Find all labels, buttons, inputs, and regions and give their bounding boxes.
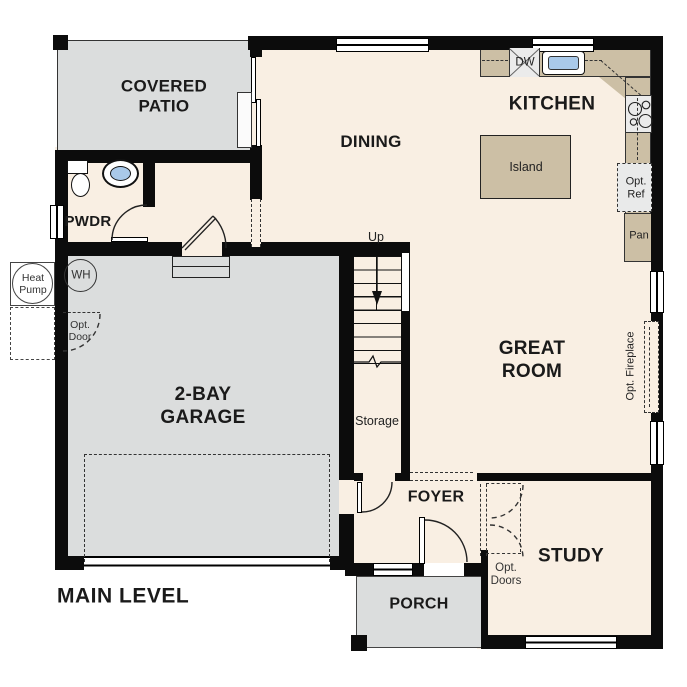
stairs-break-line	[352, 355, 402, 369]
room-label-pwdr: PWDR	[64, 213, 111, 231]
garage-foyer-door-arc	[362, 482, 392, 512]
hall-dining-cased-opening	[251, 199, 261, 247]
garage-step-lower	[172, 266, 230, 278]
pantry-label: Pan	[629, 230, 649, 243]
up-label: Up	[368, 230, 384, 244]
optional-fireplace-inner-line	[649, 327, 652, 407]
foyer-greatroom-cased-opening	[410, 472, 473, 481]
garage-entry-door	[180, 204, 228, 250]
optional-garage-door-label: Opt. Door	[69, 319, 92, 343]
garage-door-outline	[84, 454, 330, 562]
wall-hall-bottom	[55, 242, 410, 256]
powder-sink-basin	[110, 166, 131, 181]
cabinet-dash-vertical	[637, 98, 640, 160]
water-heater-label: WH	[71, 269, 90, 282]
front-door-arc	[425, 520, 467, 562]
window-kitchen	[532, 38, 594, 52]
dishwasher-label: DW	[515, 56, 534, 69]
patio-post	[53, 35, 68, 50]
wall-powder-right	[143, 150, 155, 207]
optional-refrigerator-label: Opt. Ref	[626, 175, 647, 200]
window-powder	[50, 205, 64, 239]
porch-post	[351, 635, 367, 651]
optional-fireplace-label: Opt. Fireplace	[625, 331, 638, 400]
floor-plan: DW Opt. Ref Pan Opt. Fireplace Up Storag…	[0, 0, 687, 687]
wall-garage-right	[339, 242, 354, 569]
wall-dining-west	[250, 145, 262, 200]
front-door-opening	[424, 563, 464, 576]
wall-greatroom-study	[477, 473, 663, 481]
heat-pump-label: Heat Pump	[19, 272, 46, 296]
toilet-bowl	[71, 173, 90, 197]
plan-title: MAIN LEVEL	[57, 583, 189, 608]
room-label-covered-patio: COVERED PATIO	[121, 77, 207, 118]
patio-counter	[237, 92, 252, 148]
study-opt-door-arc-upper	[490, 485, 523, 518]
island-label: Island	[509, 160, 542, 174]
powder-door-arc	[112, 205, 147, 240]
window-dining	[336, 38, 429, 52]
room-label-porch: PORCH	[389, 594, 448, 613]
window-greatroom-upper	[650, 271, 664, 313]
study-opt-doors-jamb	[480, 484, 487, 556]
patio-slider-panel-inner	[256, 99, 261, 147]
study-opt-door-arc-lower	[490, 525, 523, 558]
room-label-foyer: FOYER	[408, 487, 465, 506]
wall-foyer-bottom	[345, 563, 488, 576]
wall-study-left	[481, 550, 488, 649]
window-greatroom-lower	[650, 421, 664, 465]
wall-top	[248, 36, 663, 50]
storage-label: Storage	[355, 414, 399, 428]
heat-pump-dashed-pad	[10, 307, 55, 360]
cabinet-dash-left	[482, 60, 508, 63]
room-label-kitchen: KITCHEN	[509, 94, 596, 117]
stairs-railing	[402, 253, 409, 311]
stairs-direction-arrow	[371, 257, 383, 307]
garage-foyer-door-opening	[339, 480, 354, 514]
opt-doors-label: Opt. Doors	[491, 562, 522, 588]
room-label-great-room: GREAT ROOM	[499, 338, 566, 384]
storage-door-opening	[363, 473, 395, 481]
wall-dining-west-post	[250, 40, 262, 57]
room-label-garage: 2-BAY GARAGE	[160, 384, 245, 430]
kitchen-sink-basin	[548, 56, 579, 70]
room-label-study: STUDY	[538, 546, 604, 569]
window-foyer	[373, 563, 413, 576]
room-label-dining: DINING	[340, 132, 401, 152]
toilet-tank	[67, 160, 88, 174]
window-study	[525, 636, 617, 649]
